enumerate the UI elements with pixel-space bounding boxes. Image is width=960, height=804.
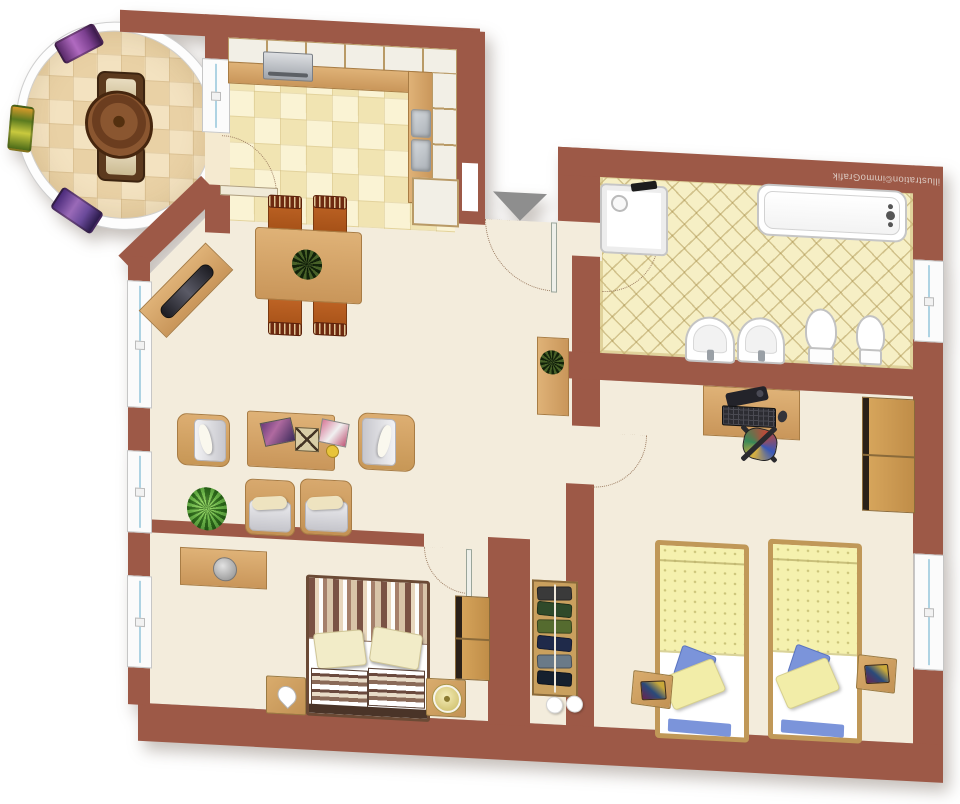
- bathroom-window: [914, 259, 944, 343]
- wall-right-3: [913, 667, 943, 748]
- flower-box-icon: [7, 104, 35, 153]
- kids-nightstand: [856, 654, 897, 694]
- bidet-icon: [856, 314, 885, 366]
- table-centerpiece-icon: [292, 249, 322, 281]
- kids-bed: [655, 540, 749, 743]
- plant-icon: [540, 350, 564, 375]
- lamp-icon: [274, 682, 301, 709]
- floor-plan-shadow: illustration©immoGrafik: [10, 4, 955, 754]
- armchair: [177, 413, 230, 468]
- toilet-icon: [805, 308, 837, 366]
- wall-left-2: [128, 530, 150, 576]
- bed-blanket: [773, 544, 857, 657]
- wardrobe-rail: [554, 585, 556, 693]
- wall-right-2: [913, 339, 943, 555]
- kitchen-cabinets-right: [432, 72, 457, 181]
- shelf-object-icon: [213, 557, 237, 582]
- bed-foot-blanket: [311, 668, 368, 709]
- bed-foot-blanket: [668, 718, 731, 736]
- bedroom-shelf: [180, 547, 267, 590]
- entrance-door-leaf: [551, 222, 557, 292]
- nightstand: [266, 675, 306, 715]
- bedroom-window: [127, 575, 152, 668]
- wall-balcony-upper: [205, 14, 230, 61]
- stove-icon: [263, 51, 313, 82]
- door-knob-icon: [546, 696, 563, 714]
- bathtub-icon: [757, 183, 907, 243]
- kids-nightstand: [631, 670, 674, 709]
- lamp-icon: [433, 684, 461, 713]
- armchair: [358, 412, 415, 472]
- entrance-arrow-icon: [493, 191, 547, 222]
- bed-pillow: [313, 629, 368, 669]
- office-chair-seat: [740, 425, 779, 464]
- double-bed: [306, 575, 430, 722]
- kids-wardrobe: [862, 397, 915, 514]
- nightstand-item: [864, 664, 890, 684]
- wall-left-1: [128, 405, 150, 451]
- door-knob-icon: [566, 695, 583, 713]
- shower-icon: [600, 183, 668, 257]
- office-chair: [733, 418, 785, 469]
- bedroom-door-leaf: [466, 549, 472, 597]
- kitchen-cabinet-block: [412, 177, 459, 227]
- bed-pillow-yellow: [774, 656, 840, 709]
- sink-basin-icon: [411, 109, 431, 138]
- built-in-wardrobe: [532, 579, 578, 697]
- wall-corridor-left: [488, 537, 530, 726]
- lounge-chair: [245, 478, 295, 537]
- hall-cabinet: [537, 337, 569, 417]
- kids-window: [914, 553, 944, 671]
- wall-left-3: [128, 665, 150, 705]
- lounge-chair: [300, 478, 352, 537]
- kids-bed: [768, 539, 862, 744]
- bathroom-door-threshold: [558, 219, 602, 261]
- bed-foot-blanket: [368, 668, 425, 709]
- wall-bathroom-left: [572, 255, 600, 426]
- bed-foot-blanket: [781, 719, 844, 737]
- game-box-icon: [295, 427, 319, 452]
- nightstand: [426, 678, 466, 718]
- nightstand-item: [640, 680, 666, 700]
- floor-plan: illustration©immoGrafik: [10, 4, 955, 804]
- sink-basin-icon: [411, 139, 431, 172]
- wall-niche: [462, 163, 478, 212]
- balcony-window: [202, 58, 230, 133]
- bed-blanket: [660, 545, 744, 657]
- cup-icon: [326, 445, 339, 459]
- bedroom-wardrobe: [455, 595, 490, 681]
- living-window-2: [127, 450, 152, 533]
- wall-left-stub: [128, 256, 150, 281]
